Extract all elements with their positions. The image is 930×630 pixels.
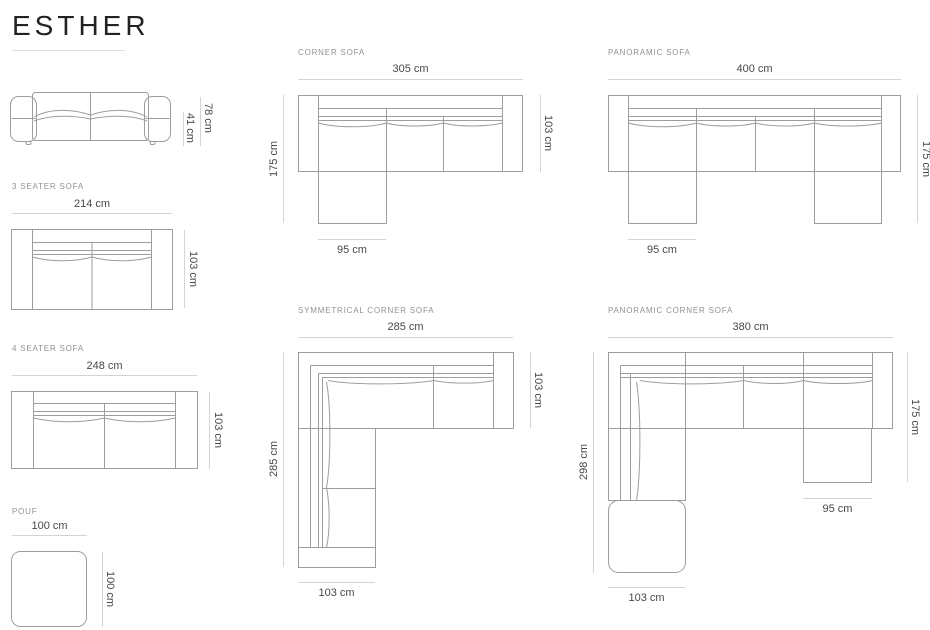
section-label-panoramic: PANORAMIC SOFA xyxy=(608,48,691,57)
dim-line-panoramic-corner-length-right xyxy=(907,352,908,482)
dim-line-panoramic-length xyxy=(917,95,918,223)
title-underline xyxy=(12,50,125,51)
dim-line-corner-length xyxy=(283,95,284,223)
dim-panoramic-length: 175 cm xyxy=(920,141,930,177)
section-label-three-seater: 3 SEATER SOFA xyxy=(12,182,84,191)
dim-pouf-depth: 100 cm xyxy=(104,571,116,607)
dim-three-seater-depth: 103 cm xyxy=(187,251,199,287)
section-label-pouf: POUF xyxy=(12,507,37,516)
symmetrical-corner-drawing xyxy=(296,350,516,570)
dim-line-panoramic-corner-chaise xyxy=(803,498,872,499)
dim-line-symmetrical-length xyxy=(283,352,284,567)
dim-line-symmetrical-depth xyxy=(530,352,531,428)
dim-symmetrical-bottom: 103 cm xyxy=(298,587,375,599)
dim-panoramic-corner-bottom: 103 cm xyxy=(608,592,685,604)
spec-sheet: ESTHER 41 cm 78 cm 3 SEATER SOFA 214 cm … xyxy=(0,0,930,630)
dim-corner-width: 305 cm xyxy=(298,63,523,75)
dim-panoramic-corner-width: 380 cm xyxy=(608,321,893,333)
dim-line-corner-chaise xyxy=(318,239,386,240)
front-sofa-drawing xyxy=(8,88,173,150)
dim-line-corner-width xyxy=(298,79,523,80)
dim-panoramic-corner-length-right: 175 cm xyxy=(909,399,921,435)
dim-line-corner-depth xyxy=(540,95,541,172)
dim-line-three-seater-width xyxy=(12,213,172,214)
dim-corner-chaise: 95 cm xyxy=(318,244,386,256)
dim-four-seater-depth: 103 cm xyxy=(212,412,224,448)
dim-line-panoramic-corner-bottom xyxy=(608,587,685,588)
dim-line-pouf-depth xyxy=(102,552,103,627)
dim-line-panoramic-corner-width xyxy=(608,337,893,338)
section-label-corner-sofa: CORNER SOFA xyxy=(298,48,365,57)
dim-line-symmetrical-bottom xyxy=(298,582,375,583)
panoramic-sofa-drawing xyxy=(606,93,904,226)
dim-corner-length: 175 cm xyxy=(268,141,280,177)
dim-pouf-width: 100 cm xyxy=(12,520,87,532)
dim-line-four-seater-width xyxy=(12,375,197,376)
dim-line-three-seater-depth xyxy=(184,230,185,308)
section-label-four-seater: 4 SEATER SOFA xyxy=(12,344,84,353)
dim-three-seater-width: 214 cm xyxy=(12,198,172,210)
section-label-panoramic-corner: PANORAMIC CORNER SOFA xyxy=(608,306,733,315)
dim-panoramic-corner-chaise: 95 cm xyxy=(803,503,872,515)
dim-line-pouf-width xyxy=(12,535,87,536)
corner-sofa-drawing xyxy=(296,93,526,226)
pouf-drawing xyxy=(10,550,89,629)
dim-symmetrical-length: 285 cm xyxy=(268,441,280,477)
dim-line-four-seater-depth xyxy=(209,392,210,469)
dim-symmetrical-width: 285 cm xyxy=(298,321,513,333)
dim-panoramic-width: 400 cm xyxy=(608,63,901,75)
dim-four-seater-width: 248 cm xyxy=(12,360,197,372)
dim-panoramic-corner-length-left: 298 cm xyxy=(578,444,590,480)
page-title: ESTHER xyxy=(12,10,150,42)
four-seater-drawing xyxy=(10,390,200,471)
dim-corner-depth: 103 cm xyxy=(542,115,554,151)
section-label-symmetrical-corner: SYMMETRICAL CORNER SOFA xyxy=(298,306,434,315)
dim-symmetrical-depth: 103 cm xyxy=(532,372,544,408)
dim-line-front-total-height xyxy=(200,97,201,146)
dim-line-panoramic-corner-length-left xyxy=(593,352,594,573)
dim-line-panoramic-chaise xyxy=(628,239,696,240)
dim-panoramic-chaise: 95 cm xyxy=(628,244,696,256)
panoramic-corner-drawing xyxy=(606,350,897,577)
dim-line-panoramic-width xyxy=(608,79,901,80)
three-seater-drawing xyxy=(10,228,175,312)
dim-front-total-height: 78 cm xyxy=(202,103,214,133)
dim-line-symmetrical-width xyxy=(298,337,513,338)
dim-front-seat-height: 41 cm xyxy=(184,113,196,143)
